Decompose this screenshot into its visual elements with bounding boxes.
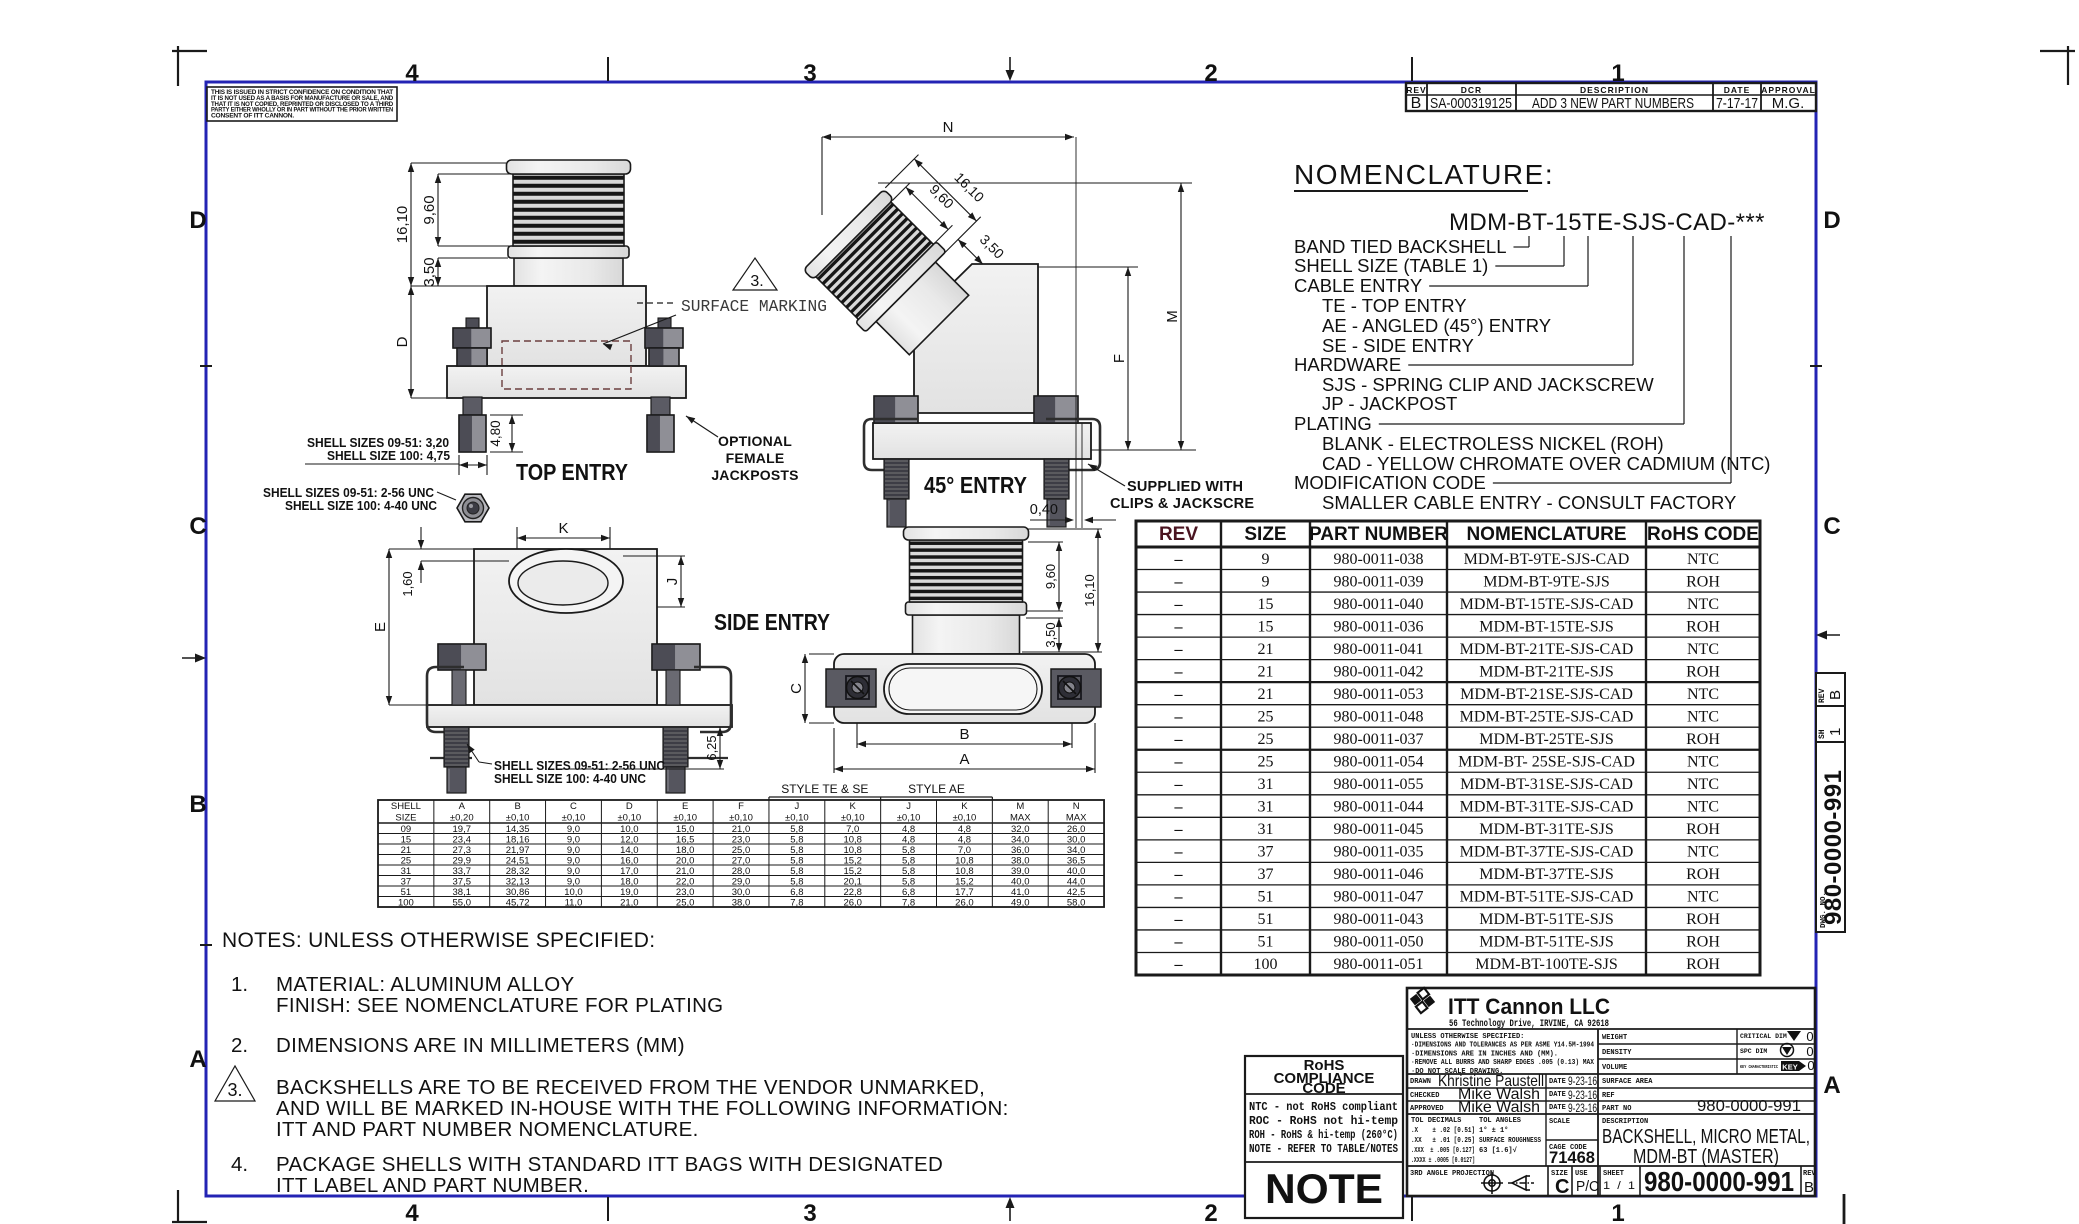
svg-text:3.: 3. bbox=[750, 273, 763, 290]
svg-text:980-0011-044: 980-0011-044 bbox=[1333, 799, 1423, 816]
svg-text:9-23-16: 9-23-16 bbox=[1568, 1074, 1597, 1088]
svg-text:56 Technology Drive, IRVINE, C: 56 Technology Drive, IRVINE, CA 92618 bbox=[1449, 1018, 1609, 1030]
svg-text:ITT Cannon LLC: ITT Cannon LLC bbox=[1448, 994, 1610, 1019]
svg-text:980-0011-055: 980-0011-055 bbox=[1333, 776, 1423, 793]
svg-text:MDM-BT-21TE-SJS-CAD: MDM-BT-21TE-SJS-CAD bbox=[1460, 641, 1634, 658]
svg-text:37,5: 37,5 bbox=[453, 876, 472, 887]
svg-text:ROH: ROH bbox=[1686, 663, 1720, 680]
svg-text:10,8: 10,8 bbox=[955, 866, 974, 877]
svg-text:18,0: 18,0 bbox=[676, 845, 695, 856]
svg-text:.XX ± .01 [0.25]: .XX ± .01 [0.25] bbox=[1411, 1137, 1475, 1145]
svg-text:OPTIONAL: OPTIONAL bbox=[718, 433, 792, 449]
svg-text:MDM-BT-9TE-SJS-CAD: MDM-BT-9TE-SJS-CAD bbox=[1464, 551, 1630, 568]
svg-text:21: 21 bbox=[1258, 641, 1274, 658]
svg-text:REV: REV bbox=[1818, 688, 1827, 703]
svg-text:ROH: ROH bbox=[1686, 618, 1720, 635]
svg-text:–: – bbox=[1174, 866, 1184, 883]
svg-text:D: D bbox=[394, 336, 411, 347]
svg-text:51: 51 bbox=[1258, 889, 1274, 906]
svg-text:27,0: 27,0 bbox=[732, 855, 751, 866]
svg-text:CONSENT OF ITT CANNON.: CONSENT OF ITT CANNON. bbox=[211, 113, 294, 120]
svg-text:M: M bbox=[1016, 801, 1024, 812]
svg-text:–: – bbox=[1174, 844, 1184, 861]
svg-text:0: 0 bbox=[1807, 1058, 1814, 1073]
svg-text:9,0: 9,0 bbox=[567, 855, 580, 866]
svg-text:.XXX ± .005 [0.127]: .XXX ± .005 [0.127] bbox=[1411, 1147, 1475, 1155]
svg-text:J: J bbox=[795, 801, 800, 812]
svg-text:F: F bbox=[1111, 354, 1128, 363]
svg-text:MDM-BT-25TE-SJS-CAD: MDM-BT-25TE-SJS-CAD bbox=[1460, 708, 1634, 725]
svg-text:38,0: 38,0 bbox=[1011, 855, 1030, 866]
svg-text:MAX: MAX bbox=[1066, 813, 1087, 824]
svg-text:MDM-BT-21SE-SJS-CAD: MDM-BT-21SE-SJS-CAD bbox=[1460, 686, 1633, 703]
svg-text:SURFACE MARKING: SURFACE MARKING bbox=[681, 297, 827, 316]
svg-text:M.G.: M.G. bbox=[1772, 95, 1805, 112]
svg-text:16,0: 16,0 bbox=[620, 855, 639, 866]
svg-text:MDM-BT-100TE-SJS: MDM-BT-100TE-SJS bbox=[1475, 956, 1618, 973]
svg-text:SIZE: SIZE bbox=[1244, 524, 1286, 545]
svg-text:BLANK - ELECTROLESS NICKEL (RO: BLANK - ELECTROLESS NICKEL (ROH) bbox=[1322, 433, 1664, 454]
svg-text:SHELL: SHELL bbox=[391, 801, 421, 812]
svg-text:SUPPLIED WITH: SUPPLIED WITH bbox=[1127, 479, 1243, 495]
svg-text:42,5: 42,5 bbox=[1067, 887, 1086, 898]
svg-text:SHEET: SHEET bbox=[1603, 1170, 1624, 1178]
svg-text:22,8: 22,8 bbox=[843, 887, 862, 898]
svg-text:21,0: 21,0 bbox=[732, 824, 751, 835]
svg-text:±0,10: ±0,10 bbox=[897, 813, 921, 824]
svg-text:980-0011-040: 980-0011-040 bbox=[1333, 596, 1423, 613]
svg-text:MDM-BT-51TE-SJS: MDM-BT-51TE-SJS bbox=[1479, 934, 1614, 951]
svg-text:ROH: ROH bbox=[1686, 821, 1720, 838]
svg-text:D: D bbox=[626, 801, 633, 812]
svg-text:1: 1 bbox=[1611, 1200, 1624, 1224]
svg-text:SURFACE AREA: SURFACE AREA bbox=[1602, 1078, 1653, 1086]
svg-text:CHECKED: CHECKED bbox=[1410, 1092, 1439, 1100]
svg-text:980-0011-048: 980-0011-048 bbox=[1333, 708, 1423, 725]
svg-text:5,8: 5,8 bbox=[902, 866, 915, 877]
svg-text:MDM-BT-31TE-SJS-CAD: MDM-BT-31TE-SJS-CAD bbox=[1460, 799, 1634, 816]
svg-text:ROH: ROH bbox=[1686, 934, 1720, 951]
svg-text:ROH: ROH bbox=[1686, 956, 1720, 973]
svg-text:21,97: 21,97 bbox=[506, 845, 530, 856]
svg-text:±0,10: ±0,10 bbox=[562, 813, 586, 824]
svg-text:SIZE: SIZE bbox=[395, 813, 416, 824]
svg-text:±0,20: ±0,20 bbox=[450, 813, 474, 824]
svg-text:MODIFICATION CODE: MODIFICATION CODE bbox=[1294, 472, 1486, 493]
svg-text:25,0: 25,0 bbox=[732, 845, 751, 856]
svg-text:–: – bbox=[1174, 911, 1184, 928]
svg-text:HARDWARE: HARDWARE bbox=[1294, 354, 1401, 375]
svg-text:MDM-BT-37TE-SJS-CAD: MDM-BT-37TE-SJS-CAD bbox=[1460, 844, 1634, 861]
svg-text:980-0011-037: 980-0011-037 bbox=[1333, 731, 1423, 748]
svg-text:REV: REV bbox=[1159, 524, 1198, 545]
svg-text:7-17-17: 7-17-17 bbox=[1716, 95, 1758, 112]
svg-text:NTC: NTC bbox=[1687, 776, 1719, 793]
svg-text:SHELL SIZES 09-51: 2-56 UNC: SHELL SIZES 09-51: 2-56 UNC bbox=[494, 759, 665, 773]
svg-text:980-0011-050: 980-0011-050 bbox=[1333, 934, 1423, 951]
svg-text:DATE: DATE bbox=[1549, 1078, 1566, 1086]
svg-text:100: 100 bbox=[1254, 956, 1278, 973]
svg-text:980-0011-042: 980-0011-042 bbox=[1333, 663, 1423, 680]
svg-text:36,5: 36,5 bbox=[1067, 855, 1086, 866]
svg-text:NOTE: NOTE bbox=[1265, 1165, 1383, 1212]
svg-text:–: – bbox=[1174, 596, 1184, 613]
svg-text:58,0: 58,0 bbox=[1067, 897, 1086, 908]
svg-text:SIDE ENTRY: SIDE ENTRY bbox=[714, 609, 830, 635]
svg-text:15,2: 15,2 bbox=[843, 855, 862, 866]
svg-text:15,0: 15,0 bbox=[676, 824, 695, 835]
svg-text:–: – bbox=[1174, 776, 1184, 793]
svg-text:C: C bbox=[1823, 513, 1840, 540]
svg-text:±0,10: ±0,10 bbox=[785, 813, 809, 824]
svg-text:SHELL SIZE 100: 4-40 UNC: SHELL SIZE 100: 4-40 UNC bbox=[285, 499, 437, 513]
svg-text:16,10: 16,10 bbox=[1082, 574, 1097, 607]
svg-text:PART NO: PART NO bbox=[1602, 1105, 1631, 1113]
svg-text:UNLESS OTHERWISE SPECIFIED:: UNLESS OTHERWISE SPECIFIED: bbox=[1411, 1033, 1524, 1041]
svg-text:SA-000319125: SA-000319125 bbox=[1430, 95, 1512, 112]
svg-text:3,50: 3,50 bbox=[421, 257, 438, 286]
svg-text:–: – bbox=[1174, 551, 1184, 568]
svg-text:B: B bbox=[1827, 690, 1844, 700]
svg-text:NOMENCLATURE: NOMENCLATURE bbox=[1466, 524, 1626, 545]
svg-text:25,0: 25,0 bbox=[676, 897, 695, 908]
svg-text:A: A bbox=[189, 1046, 206, 1073]
svg-text:9,0: 9,0 bbox=[567, 845, 580, 856]
svg-text:980-0011-036: 980-0011-036 bbox=[1333, 618, 1423, 635]
svg-text:5,8: 5,8 bbox=[790, 866, 803, 877]
svg-text:30,0: 30,0 bbox=[1067, 834, 1086, 845]
svg-text:39,0: 39,0 bbox=[1011, 866, 1030, 877]
svg-text:9,60: 9,60 bbox=[1043, 564, 1058, 589]
svg-text:ROC - RoHS not hi-temp: ROC - RoHS not hi-temp bbox=[1249, 1115, 1398, 1128]
svg-text:26,0: 26,0 bbox=[955, 897, 974, 908]
svg-text:28,32: 28,32 bbox=[506, 866, 530, 877]
svg-text:51: 51 bbox=[1258, 934, 1274, 951]
svg-text:C: C bbox=[189, 513, 206, 540]
svg-text:·REMOVE ALL BURRS AND SHARP ED: ·REMOVE ALL BURRS AND SHARP EDGES .005 (… bbox=[1411, 1059, 1595, 1067]
svg-text:REV: REV bbox=[1406, 85, 1426, 95]
svg-text:980-0000-991: 980-0000-991 bbox=[1644, 1166, 1794, 1197]
svg-text:2: 2 bbox=[1204, 1200, 1217, 1224]
svg-text:27,3: 27,3 bbox=[453, 845, 472, 856]
svg-text:0,40: 0,40 bbox=[1030, 502, 1058, 518]
svg-text:ITT AND PART NUMBER NOMENCLATU: ITT AND PART NUMBER NOMENCLATURE. bbox=[276, 1118, 699, 1141]
svg-text:STYLE TE & SE: STYLE TE & SE bbox=[781, 782, 868, 796]
svg-text:10,8: 10,8 bbox=[843, 845, 862, 856]
svg-text:DIMENSIONS ARE IN MILLIMETERS: DIMENSIONS ARE IN MILLIMETERS (MM) bbox=[276, 1034, 685, 1057]
svg-text:26,0: 26,0 bbox=[1067, 824, 1086, 835]
svg-text:9,0: 9,0 bbox=[567, 824, 580, 835]
svg-text:0: 0 bbox=[1806, 1029, 1813, 1044]
svg-text:B: B bbox=[959, 726, 969, 743]
svg-text:2.: 2. bbox=[231, 1034, 248, 1057]
svg-text:K: K bbox=[558, 520, 568, 537]
svg-text:MDM-BT (MASTER): MDM-BT (MASTER) bbox=[1633, 1146, 1779, 1168]
svg-text:2: 2 bbox=[1204, 60, 1217, 87]
svg-text:C: C bbox=[570, 801, 577, 812]
svg-text:18,16: 18,16 bbox=[506, 834, 530, 845]
svg-text:–: – bbox=[1174, 821, 1184, 838]
svg-text:51: 51 bbox=[1258, 911, 1274, 928]
svg-text:9-23-16: 9-23-16 bbox=[1568, 1088, 1597, 1102]
svg-text:7,8: 7,8 bbox=[902, 897, 915, 908]
svg-text:ROH: ROH bbox=[1686, 573, 1720, 590]
svg-text:PLATING: PLATING bbox=[1294, 413, 1372, 434]
svg-text:980-0011-035: 980-0011-035 bbox=[1333, 844, 1423, 861]
svg-text:FEMALE: FEMALE bbox=[726, 450, 785, 466]
svg-text:SURFACE ROUGHNESS: SURFACE ROUGHNESS bbox=[1479, 1137, 1542, 1145]
svg-text:17,0: 17,0 bbox=[620, 866, 639, 877]
svg-text:.X ± .02 [0.51]: .X ± .02 [0.51] bbox=[1411, 1127, 1475, 1135]
svg-text:23,4: 23,4 bbox=[453, 834, 472, 845]
svg-text:15,2: 15,2 bbox=[955, 876, 974, 887]
svg-text:980-0011-047: 980-0011-047 bbox=[1333, 889, 1423, 906]
svg-text:1 / 1: 1 / 1 bbox=[1603, 1180, 1635, 1192]
svg-text:16,5: 16,5 bbox=[676, 834, 695, 845]
svg-text:980-0011-046: 980-0011-046 bbox=[1333, 866, 1423, 883]
svg-text:1.: 1. bbox=[231, 973, 248, 996]
svg-text:25: 25 bbox=[1258, 754, 1274, 771]
svg-text:N: N bbox=[943, 119, 954, 136]
svg-text:31: 31 bbox=[1258, 776, 1274, 793]
svg-text:20,1: 20,1 bbox=[843, 876, 862, 887]
svg-text:980-0011-043: 980-0011-043 bbox=[1333, 911, 1423, 928]
svg-text:31: 31 bbox=[1258, 821, 1274, 838]
svg-text:P/C: P/C bbox=[1576, 1178, 1599, 1195]
svg-text:–: – bbox=[1174, 799, 1184, 816]
svg-text:3: 3 bbox=[803, 60, 816, 87]
svg-text:MDM-BT-9TE-SJS: MDM-BT-9TE-SJS bbox=[1483, 573, 1610, 590]
svg-text:21: 21 bbox=[1258, 686, 1274, 703]
svg-text:12,0: 12,0 bbox=[620, 834, 639, 845]
svg-text:D: D bbox=[189, 207, 206, 234]
svg-text:PACKAGE SHELLS WITH STANDARD I: PACKAGE SHELLS WITH STANDARD ITT BAGS WI… bbox=[276, 1153, 943, 1176]
svg-text:BAND TIED BACKSHELL: BAND TIED BACKSHELL bbox=[1294, 236, 1506, 257]
svg-text:MDM-BT-31SE-SJS-CAD: MDM-BT-31SE-SJS-CAD bbox=[1460, 776, 1633, 793]
svg-text:–: – bbox=[1174, 708, 1184, 725]
svg-text:5,8: 5,8 bbox=[902, 845, 915, 856]
svg-text:9,0: 9,0 bbox=[567, 834, 580, 845]
svg-text:6,8: 6,8 bbox=[902, 887, 915, 898]
svg-text:±0,10: ±0,10 bbox=[729, 813, 753, 824]
svg-text:18,0: 18,0 bbox=[620, 876, 639, 887]
svg-text:40,0: 40,0 bbox=[1067, 866, 1086, 877]
svg-text:3: 3 bbox=[803, 1200, 816, 1224]
svg-text:20,0: 20,0 bbox=[676, 855, 695, 866]
svg-text:37: 37 bbox=[401, 876, 412, 887]
svg-text:19,0: 19,0 bbox=[620, 887, 639, 898]
svg-text:980-0011-038: 980-0011-038 bbox=[1333, 551, 1423, 568]
svg-text:15,2: 15,2 bbox=[843, 866, 862, 877]
svg-text:ROH: ROH bbox=[1686, 731, 1720, 748]
svg-text:ITT LABEL AND PART NUMBER.: ITT LABEL AND PART NUMBER. bbox=[276, 1174, 589, 1197]
svg-text:22,0: 22,0 bbox=[676, 876, 695, 887]
svg-text:TOL ANGLES: TOL ANGLES bbox=[1479, 1117, 1522, 1125]
svg-text:SHELL SIZE 100: 4-40 UNC: SHELL SIZE 100: 4-40 UNC bbox=[494, 772, 646, 786]
svg-text:34,0: 34,0 bbox=[1011, 834, 1030, 845]
svg-text:SCALE: SCALE bbox=[1549, 1118, 1570, 1126]
svg-text:38,1: 38,1 bbox=[453, 887, 472, 898]
svg-text:NTC: NTC bbox=[1687, 551, 1719, 568]
svg-text:KEY: KEY bbox=[1782, 1063, 1797, 1072]
svg-text:CODE: CODE bbox=[1302, 1080, 1345, 1097]
svg-text:D: D bbox=[1823, 207, 1840, 234]
svg-text:5,8: 5,8 bbox=[790, 834, 803, 845]
svg-text:WEIGHT: WEIGHT bbox=[1602, 1034, 1627, 1042]
svg-text:A: A bbox=[959, 751, 969, 768]
svg-text:ADD 3 NEW PART NUMBERS: ADD 3 NEW PART NUMBERS bbox=[1532, 95, 1694, 112]
svg-text:–: – bbox=[1174, 686, 1184, 703]
svg-text:DENSITY: DENSITY bbox=[1602, 1049, 1632, 1057]
svg-text:M: M bbox=[1164, 310, 1181, 323]
svg-text:0: 0 bbox=[1806, 1044, 1813, 1059]
svg-text:55,0: 55,0 bbox=[453, 897, 472, 908]
svg-text:4: 4 bbox=[405, 1200, 419, 1224]
svg-text:9,60: 9,60 bbox=[421, 195, 438, 224]
svg-text:B: B bbox=[514, 801, 520, 812]
svg-text:4,8: 4,8 bbox=[958, 824, 971, 835]
svg-text:09: 09 bbox=[401, 824, 412, 835]
svg-text:45° ENTRY: 45° ENTRY bbox=[924, 472, 1027, 498]
svg-text:SH: SH bbox=[1818, 729, 1827, 739]
svg-text:REV: REV bbox=[1803, 1170, 1816, 1178]
svg-text:980-0011-053: 980-0011-053 bbox=[1333, 686, 1423, 703]
svg-text:980-0011-041: 980-0011-041 bbox=[1333, 641, 1423, 658]
svg-text:25: 25 bbox=[1258, 708, 1274, 725]
svg-text:71468: 71468 bbox=[1549, 1148, 1595, 1167]
svg-text:DATE: DATE bbox=[1549, 1104, 1566, 1112]
svg-text:NOTES: UNLESS OTHERWISE SPECIF: NOTES: UNLESS OTHERWISE SPECIFIED: bbox=[222, 929, 655, 952]
svg-text:9: 9 bbox=[1262, 551, 1270, 568]
svg-text:B: B bbox=[1411, 95, 1422, 112]
svg-text:40,0: 40,0 bbox=[1011, 876, 1030, 887]
svg-text:32,0: 32,0 bbox=[1011, 824, 1030, 835]
svg-text:5,8: 5,8 bbox=[790, 845, 803, 856]
svg-text:4.: 4. bbox=[231, 1153, 248, 1176]
svg-text:100: 100 bbox=[398, 897, 414, 908]
svg-text:SE - SIDE ENTRY: SE - SIDE ENTRY bbox=[1322, 335, 1474, 356]
svg-text:±0,10: ±0,10 bbox=[841, 813, 865, 824]
svg-text:MDM-BT-21TE-SJS: MDM-BT-21TE-SJS bbox=[1479, 663, 1614, 680]
svg-text:–: – bbox=[1174, 641, 1184, 658]
svg-text:·DIMENSIONS ARE IN INCHES AND: ·DIMENSIONS ARE IN INCHES AND (MM). bbox=[1411, 1050, 1558, 1058]
svg-text:MDM-BT-51TE-SJS-CAD: MDM-BT-51TE-SJS-CAD bbox=[1460, 889, 1634, 906]
svg-text:19,7: 19,7 bbox=[453, 824, 472, 835]
svg-text:33,7: 33,7 bbox=[453, 866, 472, 877]
svg-text:980-0011-039: 980-0011-039 bbox=[1333, 573, 1423, 590]
svg-text:16,10: 16,10 bbox=[394, 206, 411, 244]
svg-text:B: B bbox=[1804, 1179, 1814, 1196]
svg-text:B: B bbox=[189, 791, 206, 818]
svg-text:NTC: NTC bbox=[1687, 596, 1719, 613]
svg-text:J: J bbox=[664, 578, 681, 586]
svg-text:5,8: 5,8 bbox=[790, 855, 803, 866]
svg-text:6,25: 6,25 bbox=[704, 735, 719, 760]
svg-text:±0,10: ±0,10 bbox=[673, 813, 697, 824]
svg-text:44,0: 44,0 bbox=[1067, 876, 1086, 887]
svg-text:NTC: NTC bbox=[1687, 754, 1719, 771]
svg-text:980-0000-991: 980-0000-991 bbox=[1820, 770, 1847, 925]
svg-text:A: A bbox=[459, 801, 466, 812]
svg-text:A: A bbox=[1823, 1072, 1840, 1099]
svg-text:23,0: 23,0 bbox=[676, 887, 695, 898]
svg-text:SMALLER CABLE ENTRY - CONSULT: SMALLER CABLE ENTRY - CONSULT FACTORY bbox=[1322, 492, 1736, 513]
svg-text:SHELL SIZE (TABLE 1): SHELL SIZE (TABLE 1) bbox=[1294, 255, 1488, 276]
svg-text:C: C bbox=[788, 683, 805, 694]
svg-text:5,8: 5,8 bbox=[902, 876, 915, 887]
svg-text:NTC: NTC bbox=[1687, 844, 1719, 861]
svg-text:3,50: 3,50 bbox=[1043, 622, 1058, 647]
svg-text:9,0: 9,0 bbox=[567, 866, 580, 877]
svg-text:5,8: 5,8 bbox=[902, 855, 915, 866]
svg-text:CRITICAL DIM: CRITICAL DIM bbox=[1740, 1033, 1787, 1040]
svg-text:28,0: 28,0 bbox=[732, 866, 751, 877]
svg-text:TOL DECIMALS: TOL DECIMALS bbox=[1411, 1117, 1462, 1125]
svg-text:BACKSHELL, MICRO METAL,: BACKSHELL, MICRO METAL, bbox=[1602, 1126, 1810, 1148]
svg-text:24,51: 24,51 bbox=[506, 855, 530, 866]
svg-text:21: 21 bbox=[401, 845, 412, 856]
svg-text:JACKPOSTS: JACKPOSTS bbox=[711, 467, 798, 483]
svg-text:21,0: 21,0 bbox=[676, 866, 695, 877]
svg-text:–: – bbox=[1174, 889, 1184, 906]
svg-text:7,8: 7,8 bbox=[790, 897, 803, 908]
svg-text:±0,10: ±0,10 bbox=[953, 813, 977, 824]
svg-text:CAD - YELLOW CHROMATE OVER CAD: CAD - YELLOW CHROMATE OVER CADMIUM (NTC) bbox=[1322, 453, 1770, 474]
svg-text:–: – bbox=[1174, 663, 1184, 680]
svg-text:KEY CHARACTERISTIC: KEY CHARACTERISTIC bbox=[1740, 1064, 1778, 1070]
svg-text:NTC - not RoHS compliant: NTC - not RoHS compliant bbox=[1249, 1101, 1398, 1114]
svg-text:31: 31 bbox=[1258, 799, 1274, 816]
svg-text:49,0: 49,0 bbox=[1011, 897, 1030, 908]
svg-text:F: F bbox=[738, 801, 744, 812]
svg-text:63 [1.6]√: 63 [1.6]√ bbox=[1479, 1146, 1517, 1155]
svg-text:10,8: 10,8 bbox=[843, 834, 862, 845]
svg-text:MDM-BT-25TE-SJS: MDM-BT-25TE-SJS bbox=[1479, 731, 1614, 748]
svg-text:BACKSHELLS ARE TO BE RECEIVED: BACKSHELLS ARE TO BE RECEIVED FROM THE V… bbox=[276, 1076, 985, 1099]
svg-text:10,0: 10,0 bbox=[620, 824, 639, 835]
svg-text:NTC: NTC bbox=[1687, 708, 1719, 725]
svg-text:32,13: 32,13 bbox=[506, 876, 530, 887]
svg-text:SHELL SIZE 100: 4,75: SHELL SIZE 100: 4,75 bbox=[327, 449, 450, 463]
svg-text:–: – bbox=[1174, 573, 1184, 590]
svg-text:USE: USE bbox=[1575, 1170, 1588, 1178]
svg-text:SJS - SPRING CLIP AND JACKSCRE: SJS - SPRING CLIP AND JACKSCREW bbox=[1322, 374, 1654, 395]
svg-text:51: 51 bbox=[401, 887, 412, 898]
svg-text:41,0: 41,0 bbox=[1011, 887, 1030, 898]
svg-text:15: 15 bbox=[401, 834, 412, 845]
svg-text:NOTE - REFER TO TABLE/NOTES: NOTE - REFER TO TABLE/NOTES bbox=[1249, 1143, 1398, 1156]
svg-text:15: 15 bbox=[1258, 618, 1274, 635]
svg-text:RoHS CODE: RoHS CODE bbox=[1647, 524, 1759, 545]
svg-text:DCR: DCR bbox=[1461, 85, 1482, 95]
svg-text:C: C bbox=[1555, 1176, 1569, 1198]
svg-text:PART NUMBER: PART NUMBER bbox=[1309, 524, 1448, 545]
svg-text:MDM-BT-31TE-SJS: MDM-BT-31TE-SJS bbox=[1479, 821, 1614, 838]
svg-text:21,0: 21,0 bbox=[620, 897, 639, 908]
svg-text:36,0: 36,0 bbox=[1011, 845, 1030, 856]
svg-text:1: 1 bbox=[1827, 728, 1844, 736]
svg-text:9,0: 9,0 bbox=[567, 876, 580, 887]
svg-text:.XXXX ± .0005 [0.0127]: .XXXX ± .0005 [0.0127] bbox=[1411, 1157, 1475, 1165]
svg-text:21: 21 bbox=[1258, 663, 1274, 680]
svg-text:29,9: 29,9 bbox=[453, 855, 472, 866]
svg-text:1,60: 1,60 bbox=[400, 571, 415, 596]
svg-text:NTC: NTC bbox=[1687, 799, 1719, 816]
svg-text:MDM-BT-51TE-SJS: MDM-BT-51TE-SJS bbox=[1479, 911, 1614, 928]
svg-text:REF: REF bbox=[1602, 1092, 1615, 1100]
svg-text:DESCRIPTION: DESCRIPTION bbox=[1602, 1118, 1648, 1126]
svg-text:10,0: 10,0 bbox=[564, 887, 583, 898]
